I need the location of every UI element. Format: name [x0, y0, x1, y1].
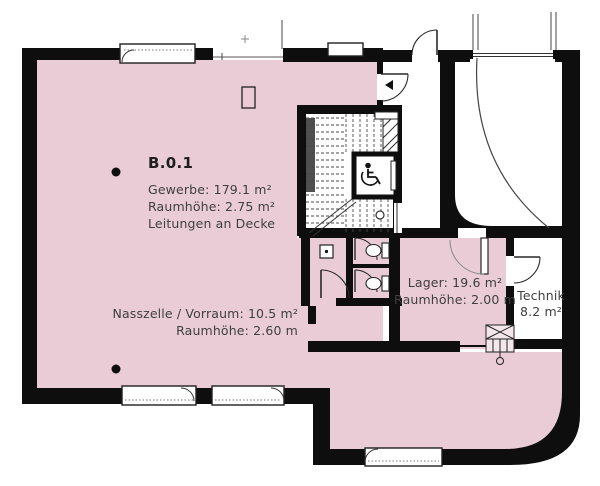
- room-main-area: Gewerbe: 179.1 m²: [148, 181, 318, 198]
- room-nook-floor: [312, 306, 383, 342]
- room-storage-height: Raumhöhe: 2.00 m: [393, 291, 517, 308]
- room-main-note: Leitungen an Decke: [148, 215, 318, 232]
- window-top-small: [328, 43, 363, 56]
- sink-icon: [320, 245, 333, 258]
- door-main-room: [381, 74, 408, 101]
- floor-plan: B.0.1 Gewerbe: 179.1 m² Raumhöhe: 2.75 m…: [0, 0, 600, 486]
- room-main-info: Gewerbe: 179.1 m² Raumhöhe: 2.75 m² Leit…: [148, 181, 318, 232]
- room-tech-info: Technik 8.2 m²: [508, 288, 574, 320]
- room-main-south-floor: [318, 352, 565, 452]
- room-tech-name: Technik: [508, 288, 574, 304]
- room-storage-area: Lager: 19.6 m²: [393, 274, 517, 291]
- curved-facade-line: [477, 58, 549, 228]
- glazing-line: [466, 50, 560, 59]
- room-wet-area: Nasszelle / Vorraum: 10.5 m²: [88, 305, 298, 322]
- door-building-entrance: [412, 30, 437, 55]
- room-marker-dot-south: [112, 365, 121, 374]
- elevator-door: [391, 161, 396, 190]
- elevator: [354, 154, 396, 197]
- room-marker-dot-main: [112, 168, 121, 177]
- room-storage-info: Lager: 19.6 m² Raumhöhe: 2.00 m: [393, 274, 517, 308]
- window-top: [120, 44, 195, 63]
- window-bottom-left-2: [212, 386, 284, 405]
- room-tech-area: 8.2 m²: [508, 304, 574, 320]
- entrance-arrow-icon: [385, 80, 393, 90]
- floor-plan-drawing: [0, 0, 600, 486]
- toilet-icon-1: [366, 243, 389, 258]
- survey-cross: [241, 35, 249, 43]
- window-bottom-right: [365, 448, 442, 466]
- toilet-icon-2: [366, 276, 389, 291]
- room-wet-height: Raumhöhe: 2.60 m: [88, 322, 298, 339]
- storage-door-opening: [458, 228, 486, 238]
- room-main-label: B.0.1: [148, 155, 193, 172]
- stairwell-door-opening: [394, 203, 402, 233]
- stair-post: [376, 211, 384, 219]
- room-wet-info: Nasszelle / Vorraum: 10.5 m² Raumhöhe: 2…: [88, 305, 298, 339]
- room-main-height: Raumhöhe: 2.75 m²: [148, 198, 318, 215]
